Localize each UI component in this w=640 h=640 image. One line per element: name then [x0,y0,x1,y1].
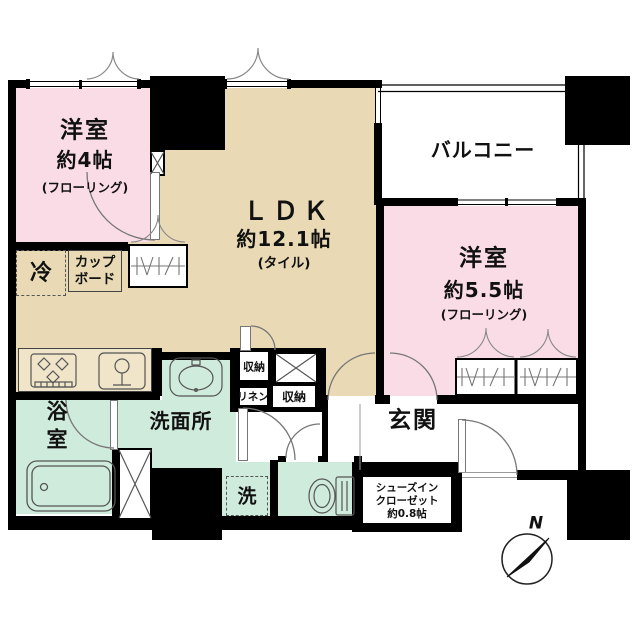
cupboard-line2: ボード [75,273,116,287]
wall-genkan-north-b [375,395,390,404]
pillar-bottom-right [567,470,630,540]
bedroom4-label: 洋室 [60,120,110,143]
door-leaf-washroom [238,408,248,461]
shoe-closet-size: 約0.8帖 [387,509,427,520]
bedroom55-label: 洋室 [459,248,509,271]
room-bathroom [16,400,120,514]
pipe-space-large [118,448,152,520]
shoe-closet-line2: クローゼット [376,496,439,507]
bedroom4-floor-note: (フローリング) [42,182,128,195]
washer-label: 洗 [237,488,256,507]
wall-washer-toilet [270,460,278,516]
pillar-top-right [565,76,630,145]
washroom-label: 洗面所 [150,411,213,431]
window-ldk-balcony [376,88,381,123]
refrigerator-label: 冷 [30,263,52,285]
ldk-label: ＬＤＫ [243,199,333,224]
entrance-label: 玄関 [388,410,438,433]
door-leaf-entrance [458,419,466,473]
closet-bedroom4 [128,244,188,288]
wall-entry-south [517,470,586,480]
room-ldk-southeast [326,352,378,396]
wall-bath-north [8,392,160,400]
wall-bedroom55-west [376,198,384,403]
wall-right [578,198,586,478]
balcony-label: バルコニー [431,140,536,160]
wall-toilet-north-b [318,456,328,462]
compass-north-label: N [529,516,543,533]
closet-bedroom55 [455,358,578,396]
bedroom55-floor-note: (フローリング) [441,309,527,322]
floor-plan: 洋室 約4帖 (フローリング) ＬＤＫ 約12.1帖 (タイル) バルコニー 洋… [0,0,640,640]
wall-genkan-north-c [437,395,578,404]
room-washroom-nook [162,356,236,400]
storage-upper-label: 収納 [243,362,265,373]
window-bedroom55-balcony [458,198,556,206]
shoe-closet-line1: シューズイン [376,483,438,494]
door-leaf-bath [110,400,118,450]
window-casement-arcs-icon [87,48,289,79]
storage-lower-label: 収納 [282,391,306,403]
wall-top-cap [374,80,382,88]
bathroom-label-char1: 浴 [47,402,68,423]
ldk-floor-note: (タイル) [258,257,311,271]
pillar-top-center [150,76,225,150]
door-arc-entrance [462,420,517,475]
door-leaf-storage-upper [240,326,251,351]
wall-bedroom55-top-b [556,198,578,206]
wall-kitchen-east [152,348,162,396]
room-hall [236,412,322,462]
door-leaf-bedroom4 [150,172,160,240]
cupboard-line1: カップ [75,256,116,270]
wall-left [8,80,16,530]
pipe-space-cluster [274,352,318,384]
wall-ldk-balcony [374,123,382,205]
bedroom55-size: 約5.5帖 [444,280,524,300]
wall-ldk-south [160,352,240,360]
wall-top-right [290,80,378,88]
wall-bedroom55-top-a [376,198,458,206]
bedroom4-size: 約4帖 [57,150,114,170]
ldk-size: 約12.1帖 [236,229,331,249]
bathroom-label-char2: 室 [47,430,68,451]
kitchen-counter [18,348,152,392]
wall-bottom [8,516,356,530]
compass-icon [502,534,552,584]
room-toilet [278,462,356,518]
wall-toilet-north-a [278,456,286,462]
linen-label: リネン [237,392,269,403]
